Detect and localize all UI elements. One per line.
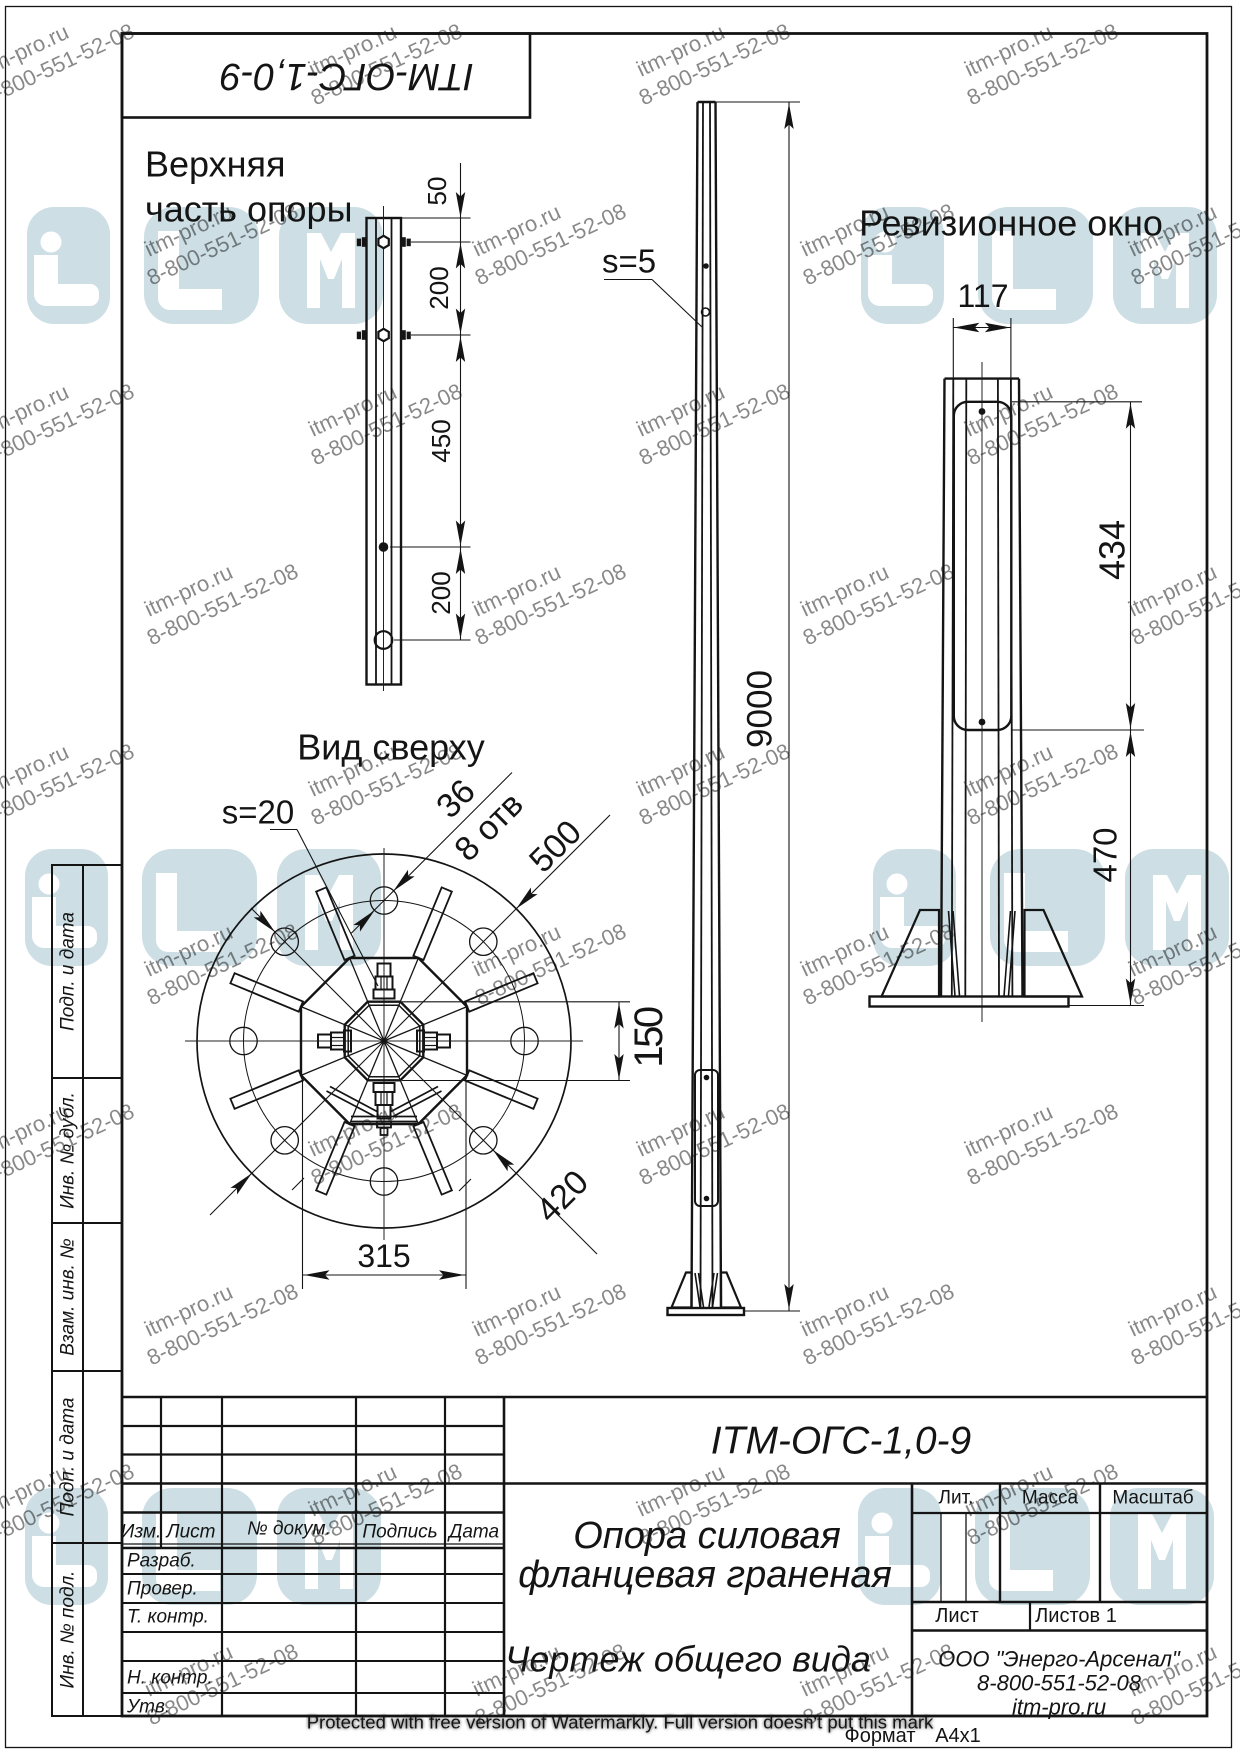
- svg-text:Разраб.: Разраб.: [127, 1551, 196, 1572]
- svg-text:Масса: Масса: [1022, 1488, 1079, 1509]
- svg-text:9000: 9000: [741, 670, 780, 748]
- svg-text:Лит.: Лит.: [939, 1488, 974, 1509]
- svg-text:Взам. инв. №: Взам. инв. №: [58, 1238, 79, 1356]
- svg-text:450: 450: [426, 419, 456, 462]
- svg-text:itm-pro.ru: itm-pro.ru: [1012, 1695, 1106, 1720]
- svg-text:Утв.: Утв.: [126, 1697, 170, 1718]
- svg-text:8-800-551-52-08: 8-800-551-52-08: [977, 1671, 1142, 1696]
- svg-text:№ докум.: № докум.: [247, 1519, 331, 1540]
- svg-text:Ревизионное окно: Ревизионное окно: [859, 203, 1163, 244]
- svg-text:Инв. № дубл.: Инв. № дубл.: [58, 1092, 79, 1209]
- svg-text:434: 434: [1092, 520, 1133, 580]
- svg-text:Подп. и дата: Подп. и дата: [58, 912, 79, 1031]
- svg-text:Т. контр.: Т. контр.: [127, 1607, 209, 1628]
- svg-text:Подп. и дата: Подп. и дата: [58, 1398, 79, 1517]
- svg-text:Лист: Лист: [935, 1605, 978, 1627]
- svg-text:150: 150: [627, 1007, 671, 1067]
- svg-text:s=5: s=5: [602, 243, 656, 280]
- svg-text:А4х1: А4х1: [935, 1725, 981, 1747]
- svg-text:Листов 1: Листов 1: [1035, 1605, 1117, 1627]
- svg-text:200: 200: [426, 571, 456, 614]
- svg-text:часть опоры: часть опоры: [145, 189, 352, 230]
- svg-text:s=20: s=20: [222, 794, 294, 831]
- svg-text:Лист: Лист: [165, 1522, 216, 1543]
- svg-text:315: 315: [357, 1238, 410, 1274]
- svg-text:Инв. № подл.: Инв. № подл.: [58, 1571, 79, 1689]
- svg-text:Подпись: Подпись: [362, 1522, 437, 1543]
- svg-text:470: 470: [1087, 827, 1124, 882]
- svg-text:фланцевая граненая: фланцевая граненая: [518, 1554, 892, 1596]
- svg-text:Дата: Дата: [447, 1522, 499, 1543]
- svg-text:Чертеж общего вида: Чертеж общего вида: [505, 1639, 871, 1680]
- svg-text:ООО "Энерго-Арсенал": ООО "Энерго-Арсенал": [938, 1647, 1181, 1672]
- svg-text:Провер.: Провер.: [127, 1579, 198, 1600]
- svg-text:Вид сверху: Вид сверху: [297, 727, 485, 768]
- svg-text:117: 117: [957, 278, 1008, 314]
- svg-text:Верхняя: Верхняя: [145, 144, 286, 185]
- svg-text:50: 50: [422, 177, 452, 206]
- svg-text:ITM-ОГС-1,0-9: ITM-ОГС-1,0-9: [220, 55, 474, 97]
- svg-text:Масштаб: Масштаб: [1112, 1488, 1193, 1509]
- svg-text:200: 200: [424, 266, 454, 309]
- svg-text:Н. контр.: Н. контр.: [127, 1668, 213, 1689]
- svg-text:ITM-ОГС-1,0-9: ITM-ОГС-1,0-9: [711, 1420, 971, 1463]
- svg-text:Опора силовая: Опора силовая: [573, 1515, 841, 1557]
- svg-text:Protected with free version of: Protected with free version of Watermark…: [307, 1712, 934, 1733]
- svg-text:Изм.: Изм.: [121, 1522, 162, 1543]
